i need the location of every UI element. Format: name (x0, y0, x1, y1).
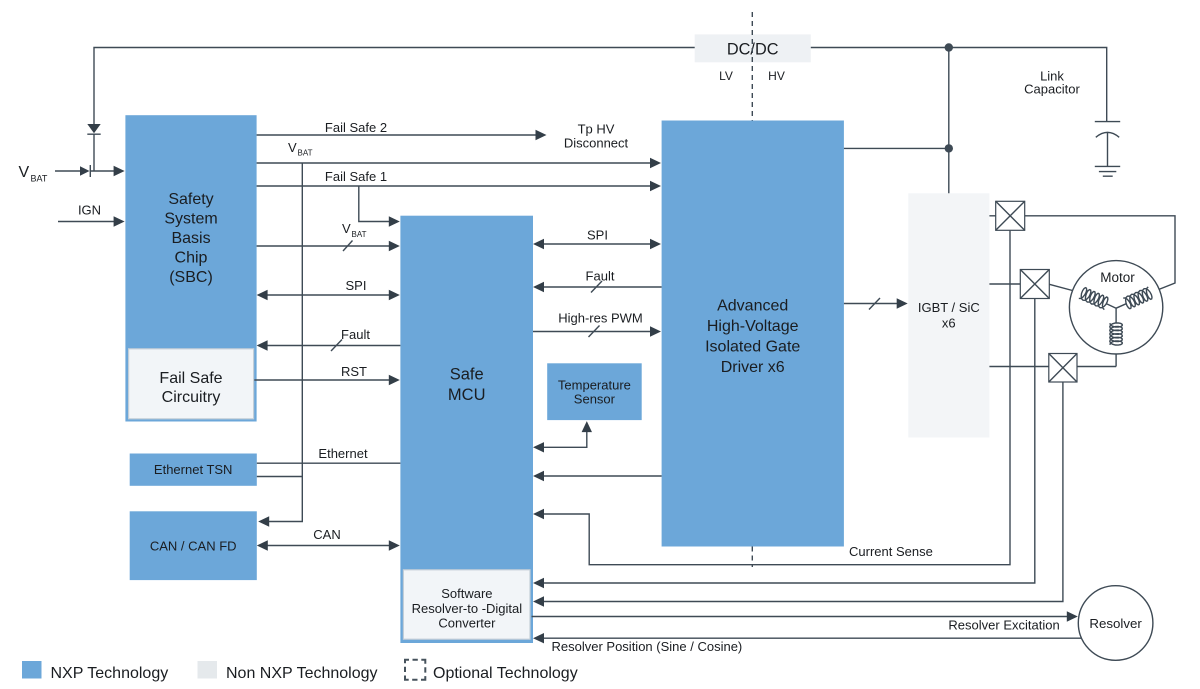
svg-text:Fail Safe 1: Fail Safe 1 (325, 169, 387, 184)
svg-text:IGBT / SiC: IGBT / SiC (918, 300, 980, 315)
svg-text:NXP Technology: NXP Technology (51, 665, 169, 682)
svg-text:Capacitor: Capacitor (1024, 82, 1080, 97)
svg-text:BAT: BAT (352, 230, 367, 239)
svg-text:Basis: Basis (171, 230, 210, 247)
svg-text:Resolver Position (Sine / Cosi: Resolver Position (Sine / Cosine) (552, 639, 743, 654)
svg-text:Isolated Gate: Isolated Gate (705, 339, 800, 356)
svg-text:Resolver Excitation: Resolver Excitation (948, 618, 1059, 633)
svg-text:Safety: Safety (168, 191, 213, 208)
svg-text:Converter: Converter (438, 616, 496, 631)
svg-text:Current Sense: Current Sense (849, 544, 933, 559)
svg-text:HV: HV (768, 69, 785, 83)
svg-text:V: V (342, 221, 351, 236)
svg-text:Chip: Chip (175, 250, 208, 267)
svg-text:IGN: IGN (78, 203, 101, 218)
svg-text:BAT: BAT (31, 174, 48, 184)
svg-text:Resolver-to -Digital: Resolver-to -Digital (412, 601, 523, 616)
svg-text:Non NXP Technology: Non NXP Technology (226, 665, 378, 682)
svg-text:Resolver: Resolver (1089, 616, 1142, 631)
svg-text:Disconnect: Disconnect (564, 136, 629, 151)
svg-text:Tp HV: Tp HV (578, 122, 615, 137)
svg-text:(SBC): (SBC) (169, 269, 213, 286)
svg-text:Advanced: Advanced (717, 298, 788, 315)
svg-text:High-Voltage: High-Voltage (707, 318, 799, 335)
svg-text:Circuitry: Circuitry (162, 389, 221, 406)
svg-text:Software: Software (441, 586, 492, 601)
svg-text:Driver x6: Driver x6 (721, 359, 785, 376)
svg-text:Fault: Fault (586, 269, 615, 284)
svg-text:Temperature: Temperature (558, 378, 631, 393)
svg-text:System: System (164, 211, 217, 228)
svg-text:BAT: BAT (298, 149, 313, 158)
svg-text:SPI: SPI (587, 228, 608, 243)
svg-text:Ethernet: Ethernet (318, 446, 368, 461)
svg-text:Fail Safe 2: Fail Safe 2 (325, 120, 387, 135)
svg-text:Sensor: Sensor (574, 392, 616, 407)
svg-text:Optional Technology: Optional Technology (433, 665, 578, 682)
svg-text:RST: RST (341, 364, 367, 379)
svg-text:Fail Safe: Fail Safe (159, 370, 222, 387)
svg-text:MCU: MCU (448, 386, 486, 404)
svg-text:High-res PWM: High-res PWM (558, 311, 643, 326)
svg-text:Safe: Safe (450, 366, 484, 384)
svg-text:V: V (288, 140, 297, 155)
svg-text:LV: LV (719, 69, 733, 83)
svg-text:Fault: Fault (341, 327, 370, 342)
svg-text:CAN: CAN (313, 527, 340, 542)
svg-text:Ethernet TSN: Ethernet TSN (154, 462, 233, 477)
svg-text:x6: x6 (942, 316, 956, 331)
svg-text:SPI: SPI (346, 278, 367, 293)
svg-text:V: V (19, 164, 30, 181)
svg-text:Motor: Motor (1100, 270, 1135, 285)
svg-text:CAN / CAN FD: CAN / CAN FD (150, 539, 237, 554)
